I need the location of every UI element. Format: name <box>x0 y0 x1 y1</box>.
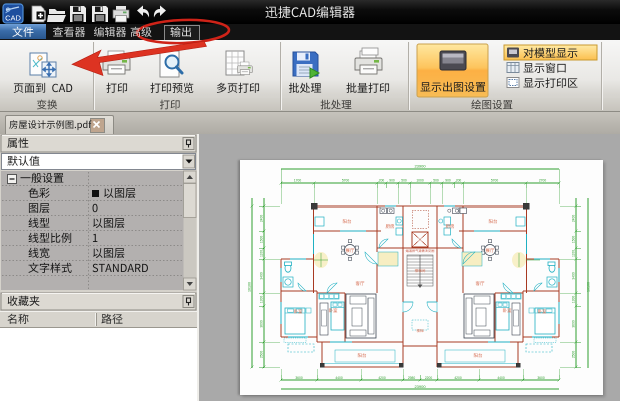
svg-text:16100: 16100 <box>248 282 252 292</box>
svg-text:1300: 1300 <box>260 296 264 304</box>
svg-text:4200: 4200 <box>378 376 386 380</box>
svg-text:1500: 1500 <box>572 236 576 244</box>
svg-text:200: 200 <box>379 179 385 183</box>
svg-text:5700: 5700 <box>491 179 499 183</box>
svg-text:2980: 2980 <box>408 376 416 380</box>
svg-text:2200: 2200 <box>425 376 433 380</box>
svg-text:4400: 4400 <box>335 376 343 380</box>
svg-text:23900: 23900 <box>414 384 426 389</box>
svg-text:1100: 1100 <box>572 250 576 257</box>
svg-text:1300: 1300 <box>572 296 576 304</box>
svg-text:2700: 2700 <box>539 179 547 183</box>
svg-text:900: 900 <box>389 179 395 183</box>
svg-text:16100: 16100 <box>587 282 591 292</box>
svg-text:1000: 1000 <box>416 179 424 183</box>
svg-text:1100: 1100 <box>260 250 264 257</box>
svg-text:23900: 23900 <box>414 164 426 169</box>
svg-text:3400: 3400 <box>260 272 264 280</box>
svg-text:200: 200 <box>456 179 462 183</box>
svg-text:500: 500 <box>433 179 439 183</box>
svg-text:500: 500 <box>401 179 407 183</box>
svg-text:3600: 3600 <box>537 376 545 380</box>
svg-text:900: 900 <box>445 179 451 183</box>
svg-text:2500: 2500 <box>260 351 264 359</box>
svg-text:1500: 1500 <box>260 236 264 244</box>
svg-text:2500: 2500 <box>572 351 576 359</box>
svg-text:4200: 4200 <box>454 376 462 380</box>
svg-text:1700: 1700 <box>294 179 302 183</box>
svg-text:3600: 3600 <box>295 376 303 380</box>
svg-text:2400: 2400 <box>260 215 264 223</box>
svg-text:4400: 4400 <box>497 376 505 380</box>
svg-text:3600: 3600 <box>260 320 264 328</box>
svg-text:3400: 3400 <box>572 272 576 280</box>
svg-text:2400: 2400 <box>572 215 576 223</box>
svg-text:5700: 5700 <box>342 179 350 183</box>
svg-text:3600: 3600 <box>572 320 576 328</box>
